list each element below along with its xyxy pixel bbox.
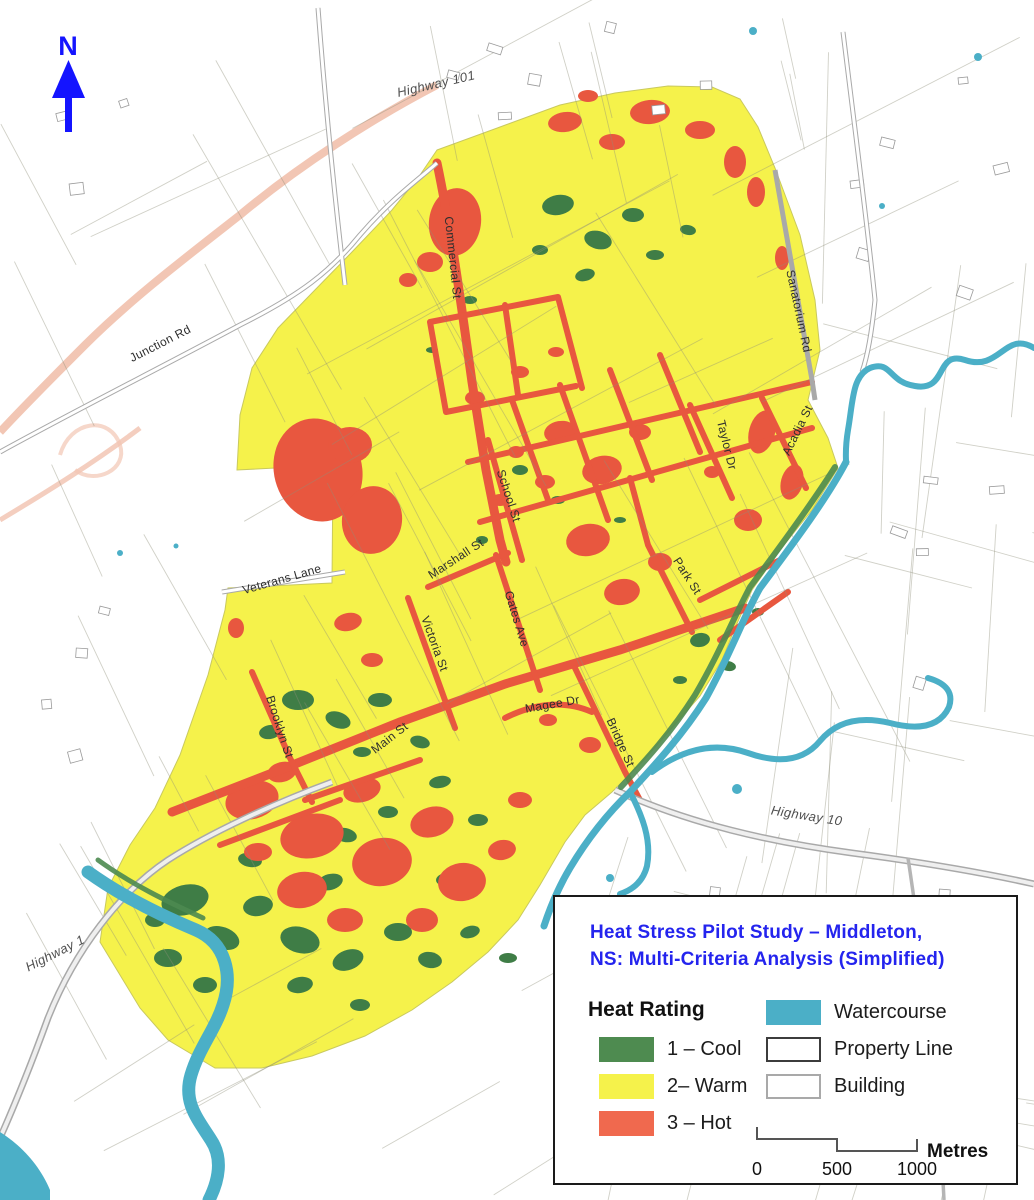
scale-bar-line (757, 1127, 917, 1151)
scale-tick-500: 500 (822, 1159, 852, 1179)
cool-swatch (599, 1037, 654, 1062)
legend-item-cool-label: 1 – Cool (667, 1038, 742, 1061)
map-title: Heat Stress Pilot Study – Middleton, NS:… (590, 919, 945, 973)
scale-unit-label: Metres (927, 1141, 988, 1162)
legend-item-watercourse: Watercourse (766, 1000, 947, 1025)
building-swatch (766, 1074, 821, 1099)
legend-item-warm: 2– Warm (599, 1074, 747, 1099)
scale-bar: 0 500 1000 Metres (747, 1119, 1022, 1181)
legend-item-property-line: Property Line (766, 1037, 953, 1062)
map-title-line2: NS: Multi-Criteria Analysis (Simplified) (590, 946, 945, 973)
map-page: Highway 101 Junction Rd Commercial St Sa… (0, 0, 1034, 1200)
legend-item-warm-label: 2– Warm (667, 1075, 747, 1098)
legend-item-hot: 3 – Hot (599, 1111, 731, 1136)
property-line-swatch (766, 1037, 821, 1062)
legend-item-watercourse-label: Watercourse (834, 1001, 947, 1024)
scale-tick-1000: 1000 (897, 1159, 937, 1179)
legend-panel: Heat Stress Pilot Study – Middleton, NS:… (553, 895, 1018, 1185)
legend-item-hot-label: 3 – Hot (667, 1112, 731, 1135)
legend-item-property-line-label: Property Line (834, 1038, 953, 1061)
warm-swatch (599, 1074, 654, 1099)
legend-item-cool: 1 – Cool (599, 1037, 742, 1062)
north-label: N (58, 31, 78, 61)
legend-item-building: Building (766, 1074, 905, 1099)
legend-item-building-label: Building (834, 1075, 905, 1098)
map-title-line1: Heat Stress Pilot Study – Middleton, (590, 919, 945, 946)
hot-swatch (599, 1111, 654, 1136)
watercourse-swatch (766, 1000, 821, 1025)
scale-tick-0: 0 (752, 1159, 762, 1179)
heat-rating-heading: Heat Rating (588, 998, 705, 1022)
